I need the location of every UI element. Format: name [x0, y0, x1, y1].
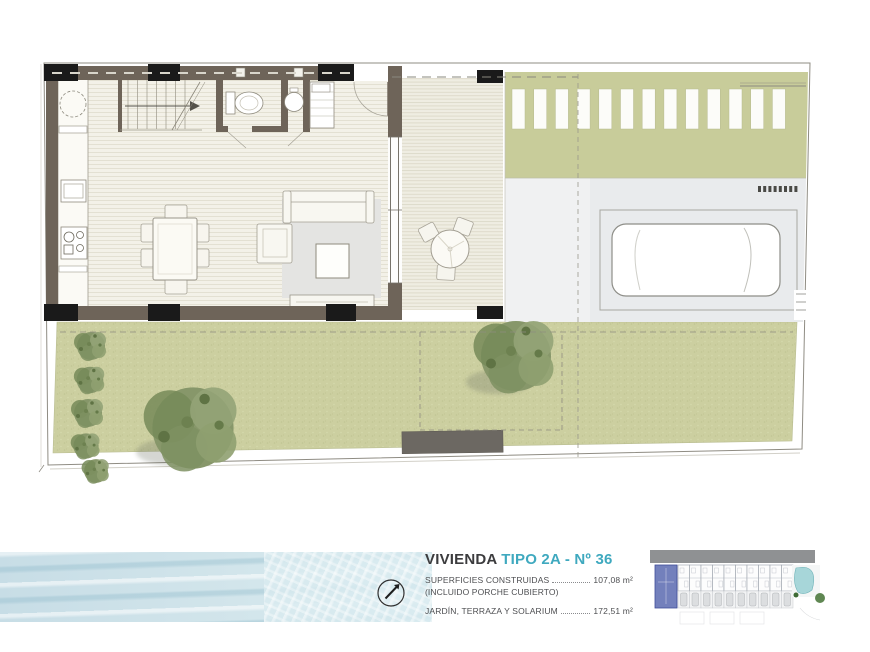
dining-table [153, 218, 197, 280]
site-pool [792, 565, 820, 597]
sofa [283, 191, 374, 223]
area-row-garden: JARDÍN, TERRAZA Y SOLARIUM 172,51 m² [425, 606, 633, 616]
shelf-unit [310, 82, 334, 128]
brochure-page: VIVIENDA TIPO 2A - Nº 36 SUPERFICIES CON… [0, 0, 870, 652]
site-tree [815, 593, 825, 603]
unit-type: TIPO 2A - Nº 36 [501, 551, 612, 568]
site-plan-thumbnail [650, 548, 828, 644]
window [388, 137, 402, 283]
cooktop-icon [61, 227, 87, 259]
storage-bench [402, 430, 503, 453]
floor-plan-drawing [0, 0, 870, 545]
area-value: 172,51 m² [593, 606, 633, 616]
dotted-leader [552, 582, 590, 583]
unit-name: VIVIENDA [425, 551, 497, 568]
toilet-icon [226, 92, 263, 114]
armchair [257, 224, 292, 263]
area-value: 107,08 m² [593, 575, 633, 585]
site-units-row [678, 565, 793, 608]
site-second-row [680, 608, 820, 624]
oven-icon [61, 180, 86, 202]
unit-info-block: VIVIENDA TIPO 2A - Nº 36 SUPERFICIES CON… [425, 551, 633, 616]
unit-title: VIVIENDA TIPO 2A - Nº 36 [425, 551, 633, 568]
area-label: SUPERFICIES CONSTRUIDAS [425, 575, 549, 585]
north-arrow-icon [375, 577, 407, 609]
coffee-table [316, 244, 349, 278]
kitchen [58, 78, 88, 308]
area-label: JARDÍN, TERRAZA Y SOLARIUM [425, 606, 558, 616]
area-row-built: SUPERFICIES CONSTRUIDAS 107,08 m² [425, 575, 633, 585]
car [612, 224, 780, 296]
dotted-leader [561, 613, 591, 614]
water-photo [0, 552, 432, 622]
site-tree [794, 593, 799, 598]
site-road [650, 550, 815, 563]
pergola [505, 72, 808, 178]
highlighted-unit [655, 565, 677, 608]
area-note: (INCLUIDO PORCHE CUBIERTO) [425, 587, 633, 597]
